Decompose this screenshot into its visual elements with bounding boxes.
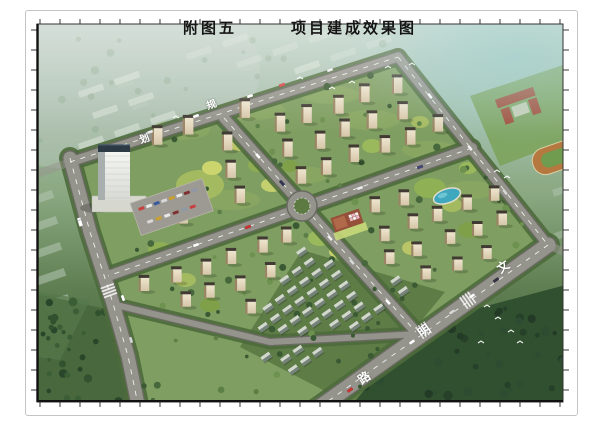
figure-number: 附图五 <box>183 21 237 38</box>
figure-title: 附图五 项目建成效果图 <box>37 21 563 38</box>
figure-page: 附图五 项目建成效果图 规划文明路 <box>0 0 600 424</box>
figure-caption: 项目建成效果图 <box>291 21 417 38</box>
roundabout <box>294 198 310 214</box>
scene <box>0 0 600 424</box>
aerial-rendering <box>0 0 600 424</box>
project-rendering-image <box>0 0 600 424</box>
